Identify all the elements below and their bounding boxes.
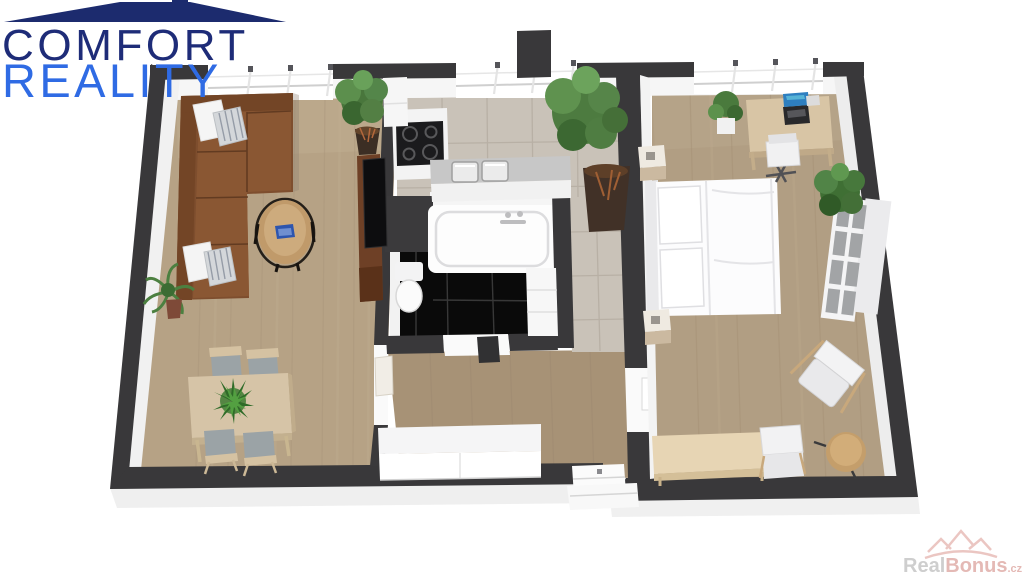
svg-text:RealBonus.cz: RealBonus.cz bbox=[903, 555, 1023, 576]
svg-text:REALITY: REALITY bbox=[2, 54, 222, 107]
